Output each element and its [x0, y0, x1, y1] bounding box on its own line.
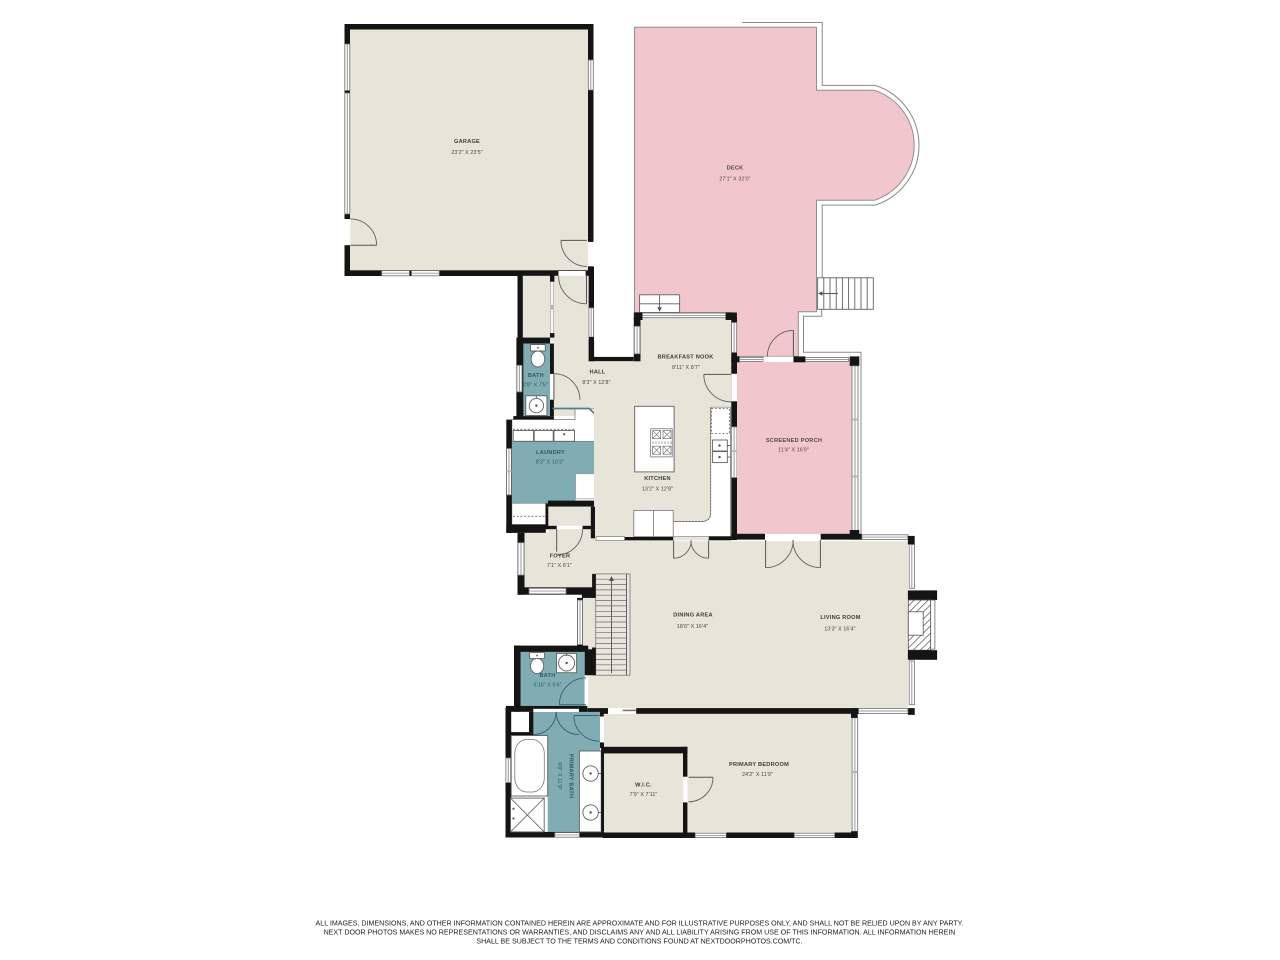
svg-text:18'0" X 16'4": 18'0" X 16'4" [677, 624, 708, 630]
svg-text:HALL: HALL [590, 370, 606, 376]
svg-text:W.I.C.: W.I.C. [635, 783, 652, 789]
svg-text:8'3" X 12'8": 8'3" X 12'8" [582, 380, 610, 386]
svg-text:SCREENED PORCH: SCREENED PORCH [766, 438, 822, 444]
svg-text:24'2" X 11'9": 24'2" X 11'9" [742, 772, 773, 778]
svg-text:FOYER: FOYER [550, 554, 571, 560]
svg-text:SHALL BE SUBJECT TO THE TERMS: SHALL BE SUBJECT TO THE TERMS AND CONDIT… [476, 938, 802, 946]
svg-text:LIVING ROOM: LIVING ROOM [820, 615, 860, 621]
svg-text:DECK: DECK [727, 166, 744, 172]
svg-text:7'1" X 6'1": 7'1" X 6'1" [547, 563, 572, 569]
svg-text:27'1" X 32'0": 27'1" X 32'0" [719, 177, 750, 183]
svg-text:BATH: BATH [528, 373, 544, 379]
svg-text:7'9" X 7'11": 7'9" X 7'11" [630, 792, 658, 798]
svg-text:13'2" X 12'8": 13'2" X 12'8" [642, 487, 673, 493]
svg-text:9'8" X 11'9": 9'8" X 11'9" [556, 762, 562, 790]
svg-text:13'3" X 16'4": 13'3" X 16'4" [824, 627, 855, 633]
svg-text:23'2" X 23'5": 23'2" X 23'5" [451, 150, 482, 156]
svg-text:8'3" X 10'3": 8'3" X 10'3" [536, 460, 564, 466]
svg-text:PRIMARY BEDROOM: PRIMARY BEDROOM [729, 762, 789, 768]
svg-text:5'10" X 5'6": 5'10" X 5'6" [533, 683, 561, 689]
svg-text:ALL IMAGES, DIMENSIONS, AND OT: ALL IMAGES, DIMENSIONS, AND OTHER INFORM… [316, 920, 964, 928]
svg-text:8'11" X 8'7": 8'11" X 8'7" [672, 365, 700, 371]
svg-text:GARAGE: GARAGE [454, 139, 480, 145]
svg-text:BREAKFAST NOOK: BREAKFAST NOOK [657, 355, 713, 361]
svg-text:KITCHEN: KITCHEN [644, 476, 671, 482]
svg-text:DINING AREA: DINING AREA [673, 613, 713, 619]
svg-text:BATH: BATH [539, 673, 555, 679]
svg-text:PRIMARY BATH: PRIMARY BATH [568, 754, 574, 799]
svg-text:2'8" X 7'5": 2'8" X 7'5" [523, 383, 548, 389]
svg-text:11'4" X 16'9": 11'4" X 16'9" [778, 448, 809, 454]
svg-text:NEXT DOOR PHOTOS MAKES NO REPR: NEXT DOOR PHOTOS MAKES NO REPRESENTATION… [324, 929, 956, 937]
svg-text:LAUNDRY: LAUNDRY [536, 450, 565, 456]
